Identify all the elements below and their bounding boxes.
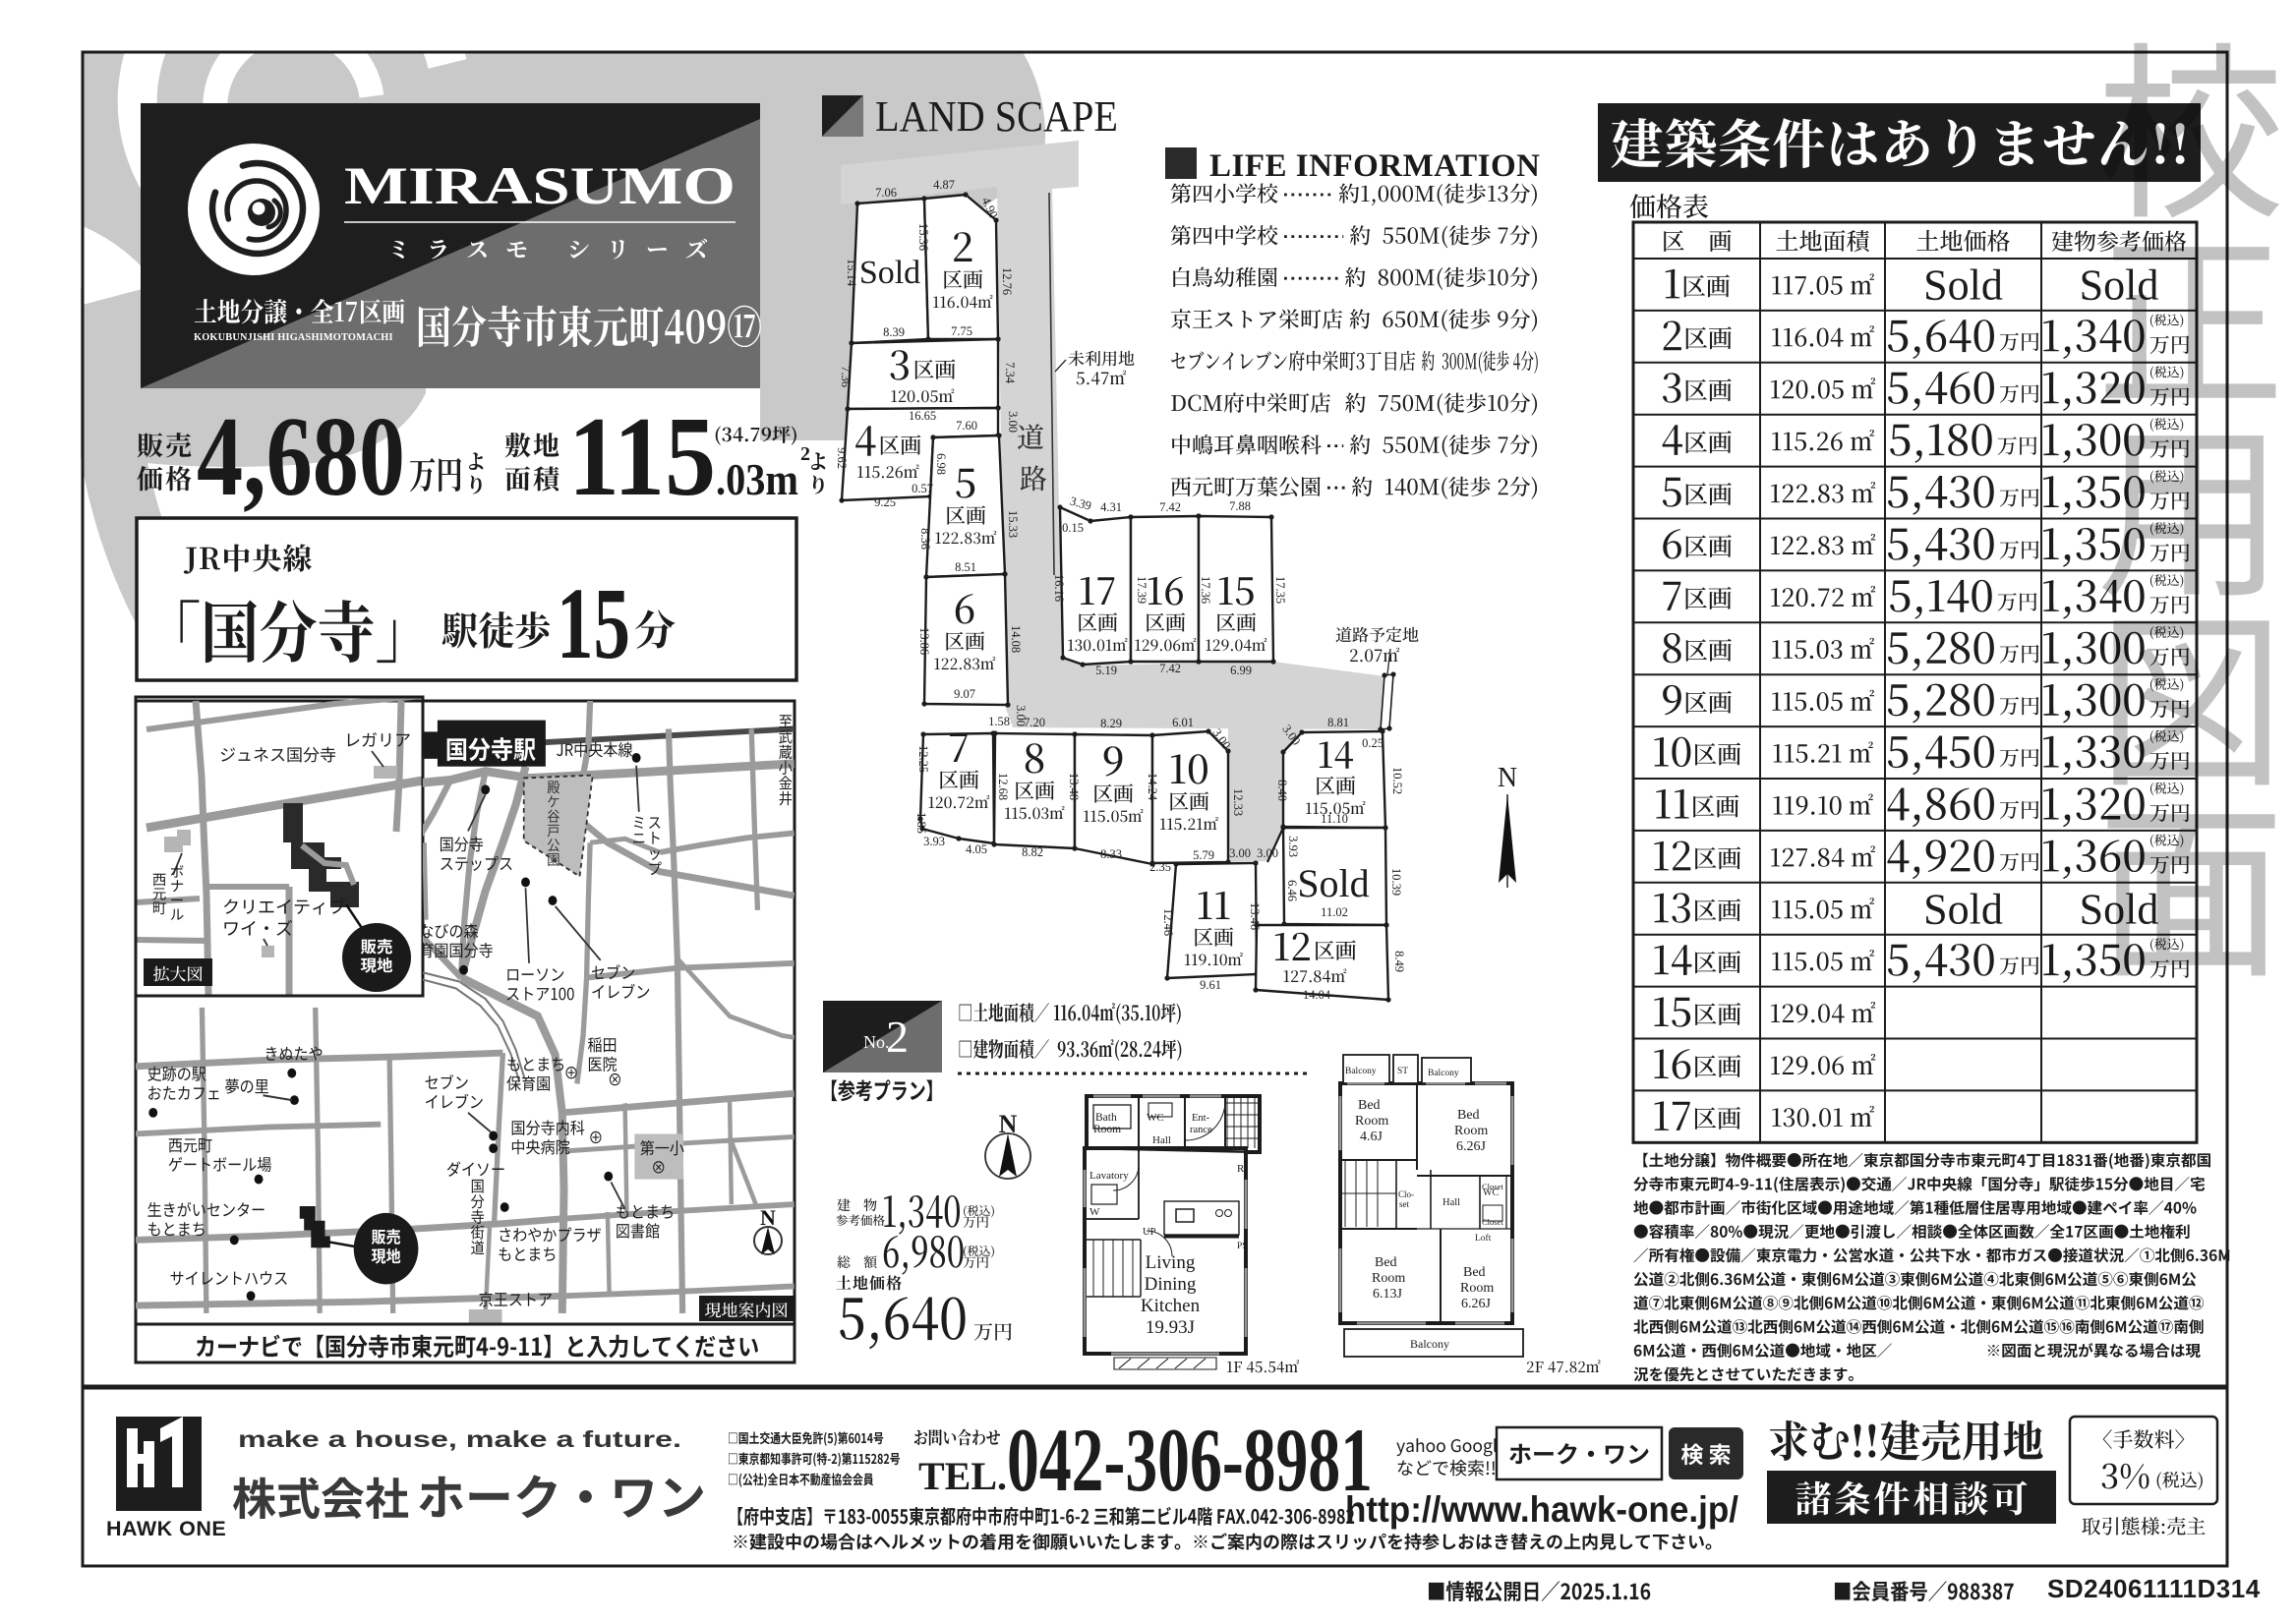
- svg-text:R: R: [1237, 1163, 1245, 1175]
- svg-text:4.6J: 4.6J: [1360, 1130, 1383, 1144]
- svg-text:0.57: 0.57: [912, 482, 933, 495]
- svg-text:LAND SCAPE: LAND SCAPE: [875, 92, 1118, 141]
- svg-text:6.46: 6.46: [1285, 880, 1299, 901]
- svg-text:Sold: Sold: [1923, 261, 2003, 309]
- svg-text:14.24: 14.24: [1146, 773, 1159, 801]
- svg-text:Sold: Sold: [1297, 861, 1369, 905]
- svg-text:8.36: 8.36: [918, 528, 932, 550]
- svg-text:12.33: 12.33: [1231, 788, 1245, 816]
- svg-text:Bed: Bed: [1358, 1098, 1381, 1113]
- svg-text:TEL.: TEL.: [918, 1454, 1007, 1498]
- svg-text:W: W: [1089, 1206, 1100, 1218]
- svg-text:15.33: 15.33: [1006, 510, 1020, 538]
- svg-text:15: 15: [557, 567, 630, 680]
- svg-text:5.19: 5.19: [1095, 664, 1117, 677]
- svg-text:set: set: [1399, 1199, 1409, 1209]
- svg-text:Sold: Sold: [2080, 261, 2159, 309]
- svg-text:6.26J: 6.26J: [1456, 1139, 1487, 1154]
- svg-text:12.76: 12.76: [1000, 267, 1014, 295]
- svg-text:Lavatory: Lavatory: [1089, 1170, 1129, 1182]
- svg-text:Room: Room: [1093, 1124, 1121, 1135]
- svg-text:9.25: 9.25: [874, 495, 896, 509]
- svg-text:Sold: Sold: [1923, 885, 2003, 933]
- svg-text:8.29: 8.29: [1100, 717, 1122, 730]
- svg-text:8.51: 8.51: [955, 560, 976, 574]
- svg-text:12.46: 12.46: [1161, 908, 1175, 936]
- svg-text:4.87: 4.87: [933, 178, 955, 192]
- svg-text:16.65: 16.65: [909, 409, 936, 423]
- svg-text:6.98: 6.98: [934, 453, 948, 475]
- svg-text:16.16: 16.16: [1052, 574, 1066, 602]
- svg-text:11.02: 11.02: [1321, 905, 1348, 919]
- svg-text:3.93: 3.93: [923, 835, 945, 848]
- svg-text:N: N: [1498, 763, 1517, 793]
- svg-text:Kitchen: Kitchen: [1141, 1296, 1201, 1316]
- svg-text:15.36: 15.36: [916, 223, 930, 251]
- svg-text:13.86: 13.86: [917, 627, 931, 655]
- svg-text:UP: UP: [1143, 1227, 1156, 1238]
- svg-text:3.00: 3.00: [1229, 846, 1251, 860]
- svg-text:WC: WC: [1147, 1112, 1164, 1124]
- svg-text:Room: Room: [1460, 1281, 1494, 1296]
- svg-text:3.00: 3.00: [1257, 846, 1278, 860]
- svg-text:2: 2: [886, 1012, 909, 1062]
- svg-text:6.26J: 6.26J: [1461, 1297, 1492, 1311]
- svg-text:12.68: 12.68: [996, 773, 1010, 800]
- svg-text:ST: ST: [1397, 1067, 1408, 1076]
- svg-text:rance: rance: [1190, 1125, 1212, 1135]
- svg-text:14.04: 14.04: [1303, 988, 1331, 1002]
- svg-text:7.60: 7.60: [956, 419, 977, 433]
- svg-text:13.46: 13.46: [1248, 902, 1262, 930]
- svg-text:11.10: 11.10: [1321, 812, 1348, 826]
- svg-text:6.13J: 6.13J: [1373, 1287, 1403, 1302]
- svg-text:1.85: 1.85: [914, 812, 928, 834]
- svg-text:13.48: 13.48: [1067, 773, 1081, 800]
- svg-text:1.58: 1.58: [988, 715, 1010, 728]
- svg-text:Bed: Bed: [1457, 1108, 1480, 1123]
- svg-text:Clo-: Clo-: [1398, 1189, 1414, 1199]
- svg-text:9.61: 9.61: [1200, 978, 1221, 992]
- svg-text:Balcony: Balcony: [1345, 1067, 1377, 1076]
- svg-text:SD24061111D314: SD24061111D314: [2047, 1574, 2261, 1603]
- svg-text:0.25: 0.25: [1362, 736, 1383, 750]
- svg-text:9.62: 9.62: [835, 447, 849, 469]
- svg-text:15.14: 15.14: [845, 259, 858, 287]
- svg-text:Bed: Bed: [1463, 1265, 1486, 1280]
- svg-text:6.01: 6.01: [1172, 716, 1194, 729]
- svg-text:HAWK ONE: HAWK ONE: [106, 1517, 226, 1540]
- svg-text:Ent-: Ent-: [1192, 1113, 1210, 1124]
- svg-text:Living: Living: [1146, 1252, 1196, 1273]
- svg-text:KOKUBUNJISHI HIGASHIMOTOMACHI: KOKUBUNJISHI HIGASHIMOTOMACHI: [194, 332, 393, 343]
- svg-text:Room: Room: [1372, 1271, 1405, 1286]
- svg-text:2: 2: [800, 443, 810, 465]
- svg-text:8.82: 8.82: [1022, 845, 1043, 859]
- svg-text:http://www.hawk-one.jp/: http://www.hawk-one.jp/: [1345, 1489, 1738, 1530]
- svg-text:8.81: 8.81: [1327, 716, 1349, 729]
- svg-text:make a house, make a future.: make a house, make a future.: [238, 1426, 681, 1452]
- svg-text:Hall: Hall: [1442, 1197, 1460, 1208]
- svg-text:7.75: 7.75: [951, 324, 972, 338]
- svg-text:19.93J: 19.93J: [1146, 1317, 1195, 1338]
- svg-text:2.35: 2.35: [1149, 860, 1171, 874]
- svg-text:8.49: 8.49: [1392, 951, 1406, 972]
- svg-text:10.39: 10.39: [1389, 868, 1403, 896]
- svg-text:8.33: 8.33: [1100, 847, 1122, 861]
- svg-text:17.39: 17.39: [1135, 576, 1148, 604]
- svg-text:MIRASUMO: MIRASUMO: [344, 156, 736, 215]
- svg-text:115: 115: [568, 394, 716, 520]
- svg-text:12.25: 12.25: [916, 745, 930, 773]
- svg-text:7.42: 7.42: [1159, 500, 1181, 514]
- svg-text:Bath: Bath: [1095, 1112, 1117, 1124]
- svg-text:0.15: 0.15: [1062, 521, 1084, 535]
- svg-text:7.34: 7.34: [1003, 362, 1017, 384]
- svg-text:Room: Room: [1454, 1124, 1488, 1138]
- svg-text:14.08: 14.08: [1009, 625, 1023, 653]
- svg-text:8.40: 8.40: [1275, 780, 1289, 801]
- svg-text:7.36: 7.36: [839, 366, 853, 387]
- svg-text:Balcony: Balcony: [1428, 1069, 1459, 1078]
- svg-text:4,680: 4,680: [197, 394, 405, 520]
- svg-text:Closet: Closet: [1482, 1182, 1503, 1191]
- svg-text:PS: PS: [1237, 1242, 1248, 1251]
- svg-text:Bed: Bed: [1375, 1255, 1397, 1270]
- svg-text:5.79: 5.79: [1193, 848, 1214, 862]
- svg-text:6.99: 6.99: [1230, 664, 1252, 677]
- svg-text:7.88: 7.88: [1229, 499, 1251, 513]
- svg-text:4.05: 4.05: [966, 842, 987, 856]
- svg-text:Room: Room: [1355, 1114, 1388, 1129]
- svg-text:042-306-8981: 042-306-8981: [1007, 1410, 1373, 1510]
- svg-text:Balcony: Balcony: [1410, 1337, 1449, 1351]
- svg-text:3.93: 3.93: [1286, 836, 1300, 857]
- svg-text:Loft: Loft: [1475, 1233, 1492, 1244]
- svg-text:9.07: 9.07: [954, 687, 975, 701]
- svg-text:7.20: 7.20: [1024, 716, 1045, 729]
- svg-text:Closet: Closet: [1482, 1217, 1503, 1227]
- svg-text:Sold: Sold: [859, 255, 920, 291]
- svg-text:7.42: 7.42: [1159, 662, 1181, 675]
- svg-text:Dining: Dining: [1145, 1274, 1197, 1295]
- svg-text:4.31: 4.31: [1100, 500, 1122, 514]
- svg-text:3.00: 3.00: [1006, 411, 1020, 433]
- svg-text:Hall: Hall: [1152, 1134, 1171, 1146]
- svg-text:7.06: 7.06: [875, 186, 897, 200]
- svg-text:.03m: .03m: [716, 454, 798, 504]
- svg-text:8.39: 8.39: [883, 325, 905, 339]
- svg-text:17.36: 17.36: [1199, 576, 1212, 604]
- svg-text:17.35: 17.35: [1273, 576, 1287, 604]
- svg-text:LIFE INFORMATION: LIFE INFORMATION: [1209, 148, 1541, 184]
- svg-text:10.52: 10.52: [1390, 767, 1404, 794]
